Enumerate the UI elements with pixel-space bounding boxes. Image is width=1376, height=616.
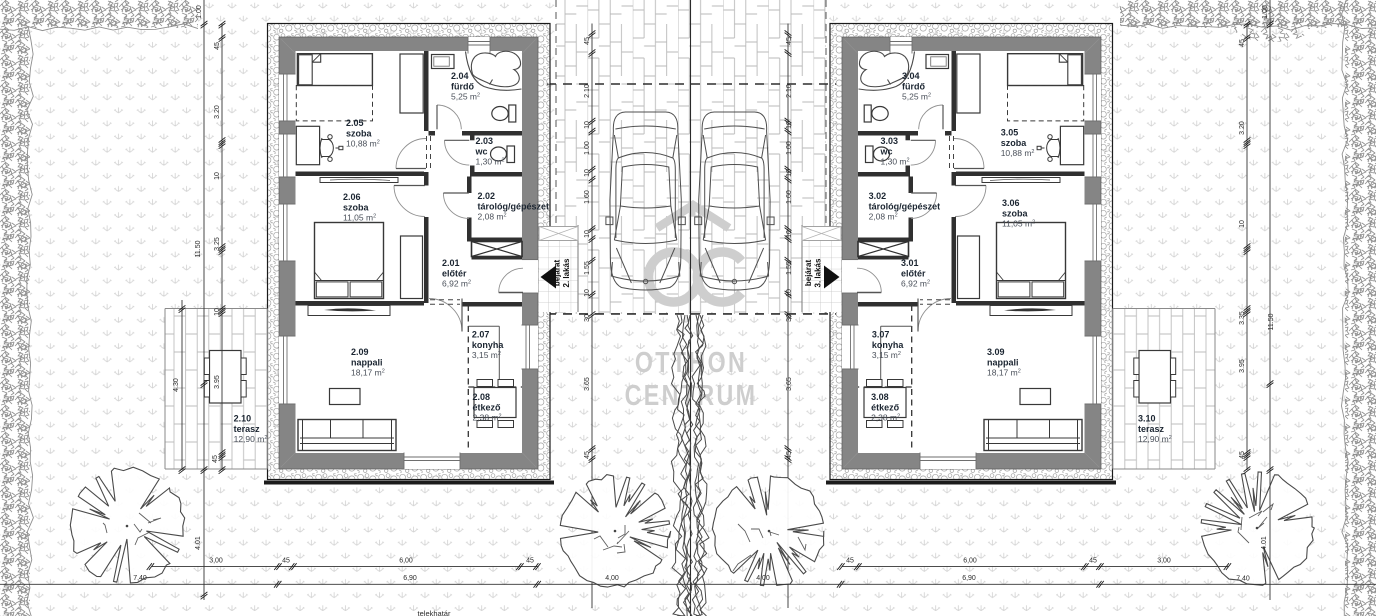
svg-text:18,17 m2: 18,17 m2 <box>351 368 385 378</box>
svg-text:szoba: szoba <box>1001 138 1028 148</box>
svg-text:11.50: 11.50 <box>195 240 202 257</box>
svg-text:45: 45 <box>1239 39 1246 47</box>
svg-text:3.07: 3.07 <box>872 330 890 340</box>
svg-text:18,17 m2: 18,17 m2 <box>987 368 1021 378</box>
svg-text:10: 10 <box>584 121 591 129</box>
svg-text:telekhatár: telekhatár <box>418 609 451 616</box>
svg-text:tárológ/gépészet: tárológ/gépészet <box>478 202 550 212</box>
svg-text:3.05: 3.05 <box>1001 128 1019 138</box>
svg-text:2.10: 2.10 <box>234 414 252 424</box>
svg-text:1.55: 1.55 <box>786 261 793 275</box>
svg-text:45: 45 <box>786 37 793 45</box>
svg-text:45: 45 <box>786 451 793 459</box>
svg-text:1.00: 1.00 <box>1262 5 1269 19</box>
svg-text:10: 10 <box>786 169 793 177</box>
svg-text:45: 45 <box>1089 558 1097 565</box>
svg-text:1,30 m2: 1,30 m2 <box>476 157 505 167</box>
svg-text:6,90: 6,90 <box>962 575 976 582</box>
svg-text:2,38 m2: 2,38 m2 <box>473 413 502 423</box>
svg-text:előtér: előtér <box>442 269 467 279</box>
svg-text:2.07: 2.07 <box>472 330 490 340</box>
svg-text:3.09: 3.09 <box>987 347 1005 357</box>
svg-text:45: 45 <box>846 558 854 565</box>
svg-text:3.35: 3.35 <box>1239 311 1246 325</box>
svg-text:45: 45 <box>282 558 290 565</box>
svg-text:1.00: 1.00 <box>584 141 591 155</box>
svg-text:wc: wc <box>475 147 488 157</box>
svg-text:11,05 m2: 11,05 m2 <box>343 213 376 223</box>
svg-text:3.25: 3.25 <box>214 237 221 251</box>
svg-text:3.20: 3.20 <box>214 105 221 119</box>
svg-text:10,88 m2: 10,88 m2 <box>1001 148 1035 158</box>
svg-text:előtér: előtér <box>901 269 926 279</box>
svg-text:2.03: 2.03 <box>476 136 494 146</box>
svg-text:10: 10 <box>786 121 793 129</box>
svg-text:45: 45 <box>584 37 591 45</box>
svg-text:4,00: 4,00 <box>605 575 619 582</box>
svg-text:10: 10 <box>584 169 591 177</box>
svg-text:nappali: nappali <box>351 358 383 368</box>
svg-text:3.65: 3.65 <box>786 377 793 391</box>
svg-text:terasz: terasz <box>1138 424 1165 434</box>
svg-text:4.01: 4.01 <box>195 536 202 550</box>
svg-text:6,00: 6,00 <box>399 558 413 565</box>
svg-text:3.08: 3.08 <box>871 392 889 402</box>
svg-text:3.01: 3.01 <box>901 258 919 268</box>
svg-text:tárológ/gépészet: tárológ/gépészet <box>869 202 941 212</box>
svg-text:nappali: nappali <box>987 358 1019 368</box>
svg-text:12,90 m2: 12,90 m2 <box>234 434 268 444</box>
svg-text:étkező: étkező <box>871 403 900 413</box>
svg-text:2,08 m2: 2,08 m2 <box>869 212 898 222</box>
svg-text:45: 45 <box>526 558 534 565</box>
svg-text:11.50: 11.50 <box>1268 313 1275 330</box>
svg-text:7,40: 7,40 <box>1236 576 1250 583</box>
svg-text:10: 10 <box>786 230 793 238</box>
svg-text:3.02: 3.02 <box>869 191 887 201</box>
svg-text:terasz: terasz <box>234 424 261 434</box>
svg-text:1.00: 1.00 <box>196 5 203 19</box>
svg-text:3. lakás: 3. lakás <box>814 258 823 287</box>
svg-text:10: 10 <box>786 289 793 297</box>
svg-text:konyha: konyha <box>872 340 905 350</box>
svg-text:2.08: 2.08 <box>473 392 491 402</box>
svg-text:2.09: 2.09 <box>351 347 369 357</box>
svg-text:4.30: 4.30 <box>173 378 180 392</box>
svg-text:45: 45 <box>584 451 591 459</box>
svg-text:30: 30 <box>786 314 793 322</box>
svg-text:3.65: 3.65 <box>584 377 591 391</box>
svg-text:2.10: 2.10 <box>786 84 793 98</box>
svg-text:2.02: 2.02 <box>478 191 496 201</box>
svg-text:bejárat: bejárat <box>553 260 562 287</box>
svg-text:3.04: 3.04 <box>902 71 920 81</box>
svg-text:fürdő: fürdő <box>451 82 474 92</box>
svg-text:konyha: konyha <box>472 340 505 350</box>
svg-text:45: 45 <box>212 455 219 463</box>
svg-text:6,92 m2: 6,92 m2 <box>442 279 471 289</box>
svg-text:10,88 m2: 10,88 m2 <box>346 139 380 149</box>
svg-text:3.20: 3.20 <box>1239 121 1246 135</box>
svg-text:5,25 m2: 5,25 m2 <box>902 92 931 102</box>
svg-text:3.95: 3.95 <box>1239 359 1246 373</box>
svg-text:3,00: 3,00 <box>209 558 223 565</box>
svg-text:4,00: 4,00 <box>756 575 770 582</box>
svg-text:2.04: 2.04 <box>451 71 469 81</box>
svg-text:5,25 m2: 5,25 m2 <box>451 92 480 102</box>
svg-text:fürdő: fürdő <box>902 82 925 92</box>
svg-text:10: 10 <box>1239 220 1246 228</box>
svg-text:45: 45 <box>214 42 221 50</box>
svg-text:3.06: 3.06 <box>1002 198 1020 208</box>
svg-text:2.06: 2.06 <box>343 192 361 202</box>
svg-text:3.95: 3.95 <box>214 375 221 389</box>
svg-text:bejárat: bejárat <box>804 260 813 287</box>
svg-text:4.01: 4.01 <box>1261 536 1268 550</box>
svg-text:10: 10 <box>214 172 221 180</box>
svg-text:30: 30 <box>584 314 591 322</box>
svg-text:10: 10 <box>584 289 591 297</box>
svg-text:1.55: 1.55 <box>584 261 591 275</box>
svg-text:2.01: 2.01 <box>442 258 460 268</box>
svg-text:3,15 m2: 3,15 m2 <box>472 350 501 360</box>
svg-text:6,92 m2: 6,92 m2 <box>901 279 930 289</box>
svg-text:11,05 m2: 11,05 m2 <box>1002 219 1035 229</box>
svg-text:szoba: szoba <box>1002 209 1029 219</box>
svg-text:6,00: 6,00 <box>963 558 977 565</box>
svg-text:3,15 m2: 3,15 m2 <box>872 350 901 360</box>
svg-text:2.10: 2.10 <box>584 84 591 98</box>
svg-text:3.10: 3.10 <box>1138 414 1156 424</box>
svg-text:2. lakás: 2. lakás <box>562 258 571 287</box>
svg-text:10: 10 <box>584 230 591 238</box>
svg-text:3,00: 3,00 <box>1157 558 1171 565</box>
svg-text:szoba: szoba <box>346 129 373 139</box>
svg-text:7,40: 7,40 <box>133 575 147 582</box>
svg-text:3.03: 3.03 <box>881 136 899 146</box>
svg-text:1,30 m2: 1,30 m2 <box>881 157 910 167</box>
svg-text:2.05: 2.05 <box>346 118 364 128</box>
svg-text:wc: wc <box>880 147 893 157</box>
svg-text:6,90: 6,90 <box>403 575 417 582</box>
svg-text:45: 45 <box>1239 451 1246 459</box>
svg-text:szoba: szoba <box>343 203 370 213</box>
svg-text:1.00: 1.00 <box>786 141 793 155</box>
svg-text:10: 10 <box>214 308 221 316</box>
svg-text:2,08 m2: 2,08 m2 <box>478 212 507 222</box>
svg-text:étkező: étkező <box>473 403 502 413</box>
svg-text:2,38 m2: 2,38 m2 <box>871 413 900 423</box>
svg-text:12,90 m2: 12,90 m2 <box>1138 434 1172 444</box>
svg-text:1.60: 1.60 <box>786 190 793 204</box>
svg-text:1.60: 1.60 <box>584 190 591 204</box>
